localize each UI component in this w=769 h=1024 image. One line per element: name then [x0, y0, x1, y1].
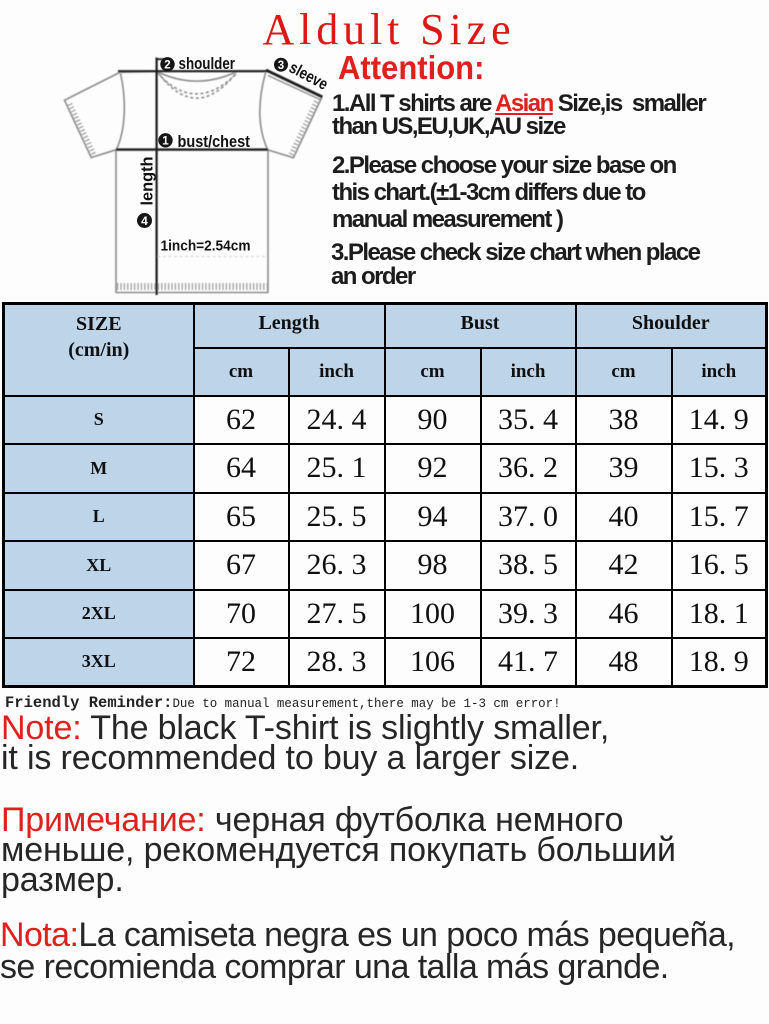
- svg-text:shoulder: shoulder: [179, 55, 236, 73]
- svg-text:4: 4: [141, 214, 148, 228]
- svg-text:3: 3: [278, 60, 284, 72]
- svg-text:sleeve: sleeve: [286, 59, 331, 94]
- svg-text:1: 1: [162, 136, 169, 148]
- svg-text:bust/chest: bust/chest: [178, 133, 251, 151]
- svg-text:1inch=2.54cm: 1inch=2.54cm: [161, 238, 251, 255]
- svg-text:2: 2: [164, 60, 170, 72]
- svg-text:length: length: [139, 157, 157, 206]
